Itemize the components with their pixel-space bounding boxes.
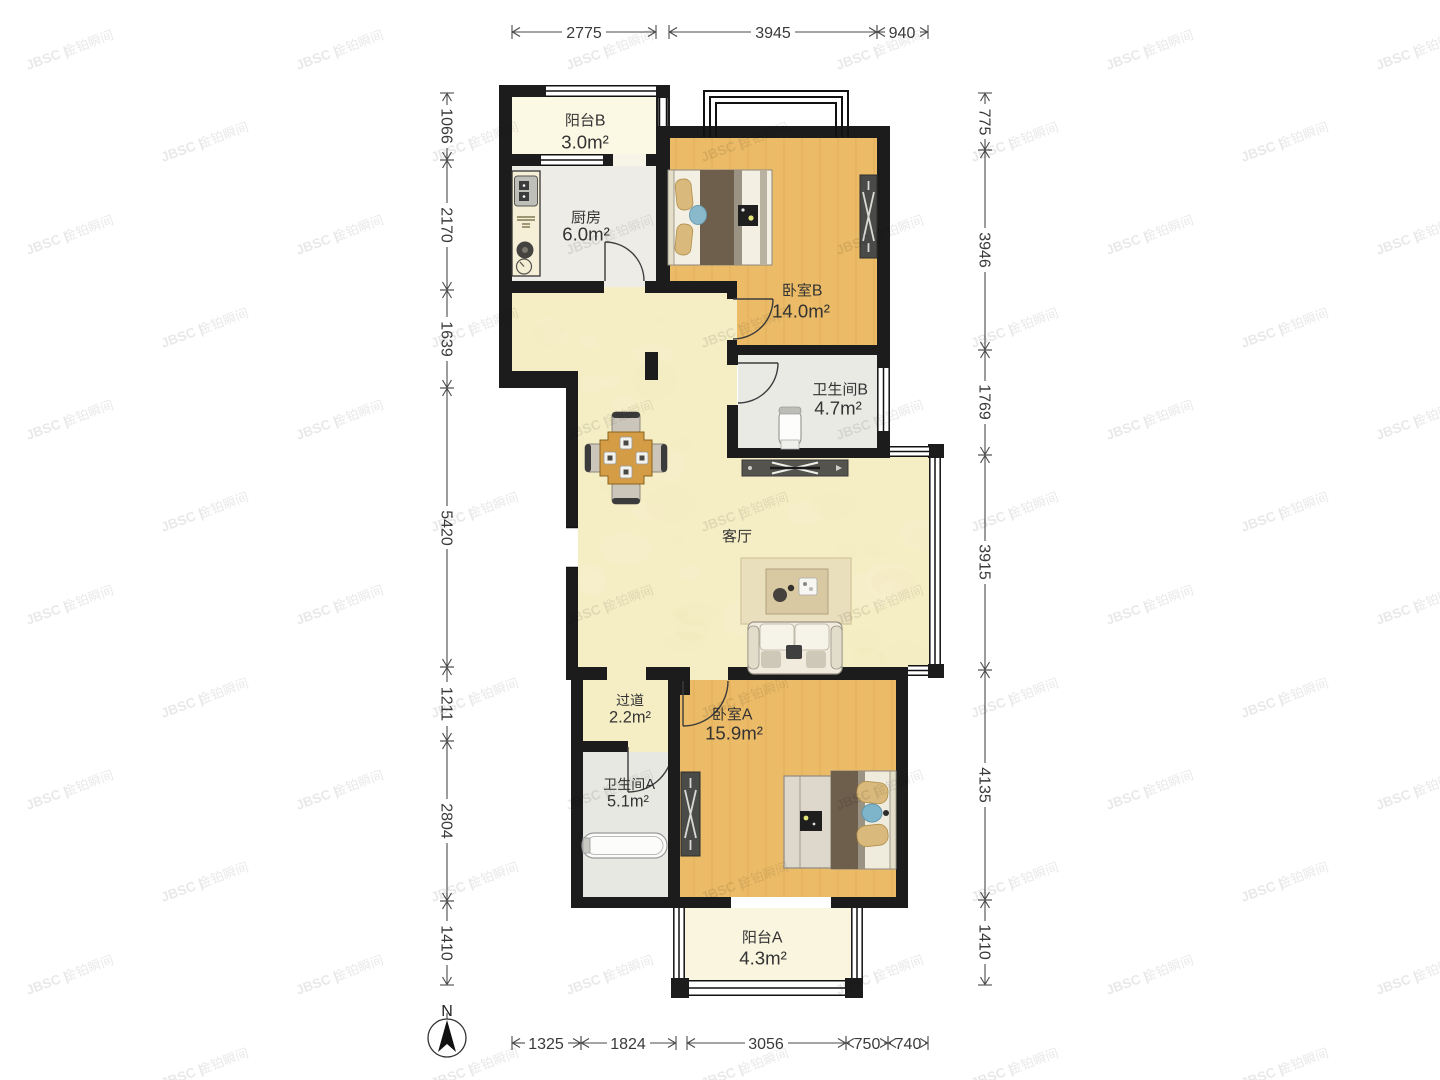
- svg-text:2804: 2804: [437, 803, 454, 839]
- svg-text:A: A: [742, 707, 753, 724]
- svg-text:750: 750: [854, 1036, 881, 1053]
- svg-text:A: A: [772, 930, 783, 947]
- svg-text:4.7m²: 4.7m²: [814, 398, 862, 419]
- svg-text:4.3m²: 4.3m²: [739, 948, 787, 969]
- svg-text:2170: 2170: [437, 207, 454, 243]
- svg-text:N: N: [441, 1003, 453, 1020]
- svg-text:1769: 1769: [975, 384, 992, 420]
- svg-text:B: B: [812, 283, 823, 300]
- svg-text:15.9m²: 15.9m²: [705, 723, 763, 744]
- svg-text:3.0m²: 3.0m²: [561, 132, 609, 153]
- svg-text:2.2m²: 2.2m²: [609, 709, 651, 727]
- svg-text:1066: 1066: [437, 108, 454, 144]
- svg-text:1325: 1325: [528, 1036, 564, 1053]
- svg-text:B: B: [595, 113, 606, 130]
- svg-text:14.0m²: 14.0m²: [772, 301, 830, 322]
- svg-text:B: B: [857, 382, 868, 399]
- svg-text:4135: 4135: [975, 767, 992, 803]
- svg-text:3915: 3915: [975, 544, 992, 580]
- svg-text:5.1m²: 5.1m²: [607, 793, 649, 811]
- svg-text:740: 740: [895, 1036, 922, 1053]
- svg-text:1410: 1410: [975, 924, 992, 960]
- svg-text:2775: 2775: [566, 25, 602, 42]
- svg-text:3945: 3945: [755, 25, 791, 42]
- svg-text:3946: 3946: [975, 232, 992, 268]
- svg-text:1824: 1824: [610, 1036, 646, 1053]
- svg-text:1410: 1410: [437, 925, 454, 961]
- svg-text:775: 775: [975, 109, 992, 136]
